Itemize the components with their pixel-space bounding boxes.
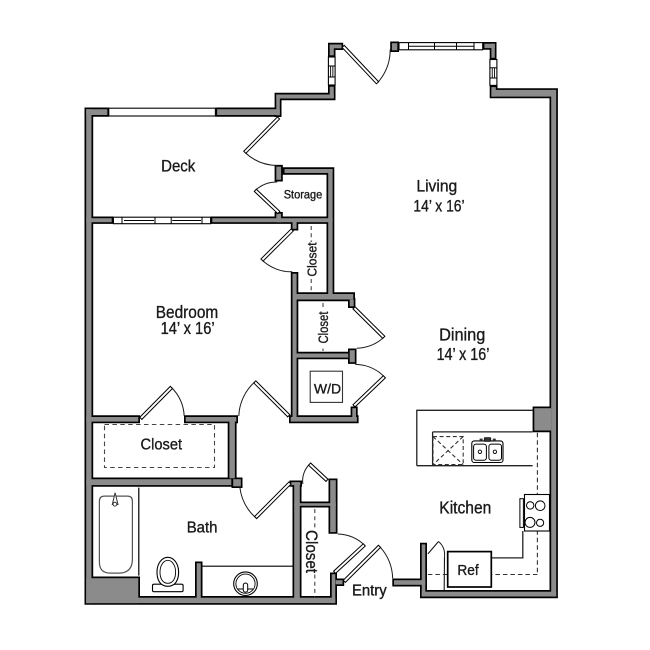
svg-text:Ref: Ref [457, 563, 479, 579]
svg-text:Closet: Closet [305, 242, 320, 277]
svg-text:Closet: Closet [302, 530, 320, 573]
svg-text:14’ x 16’: 14’ x 16’ [161, 318, 215, 338]
svg-text:14’ x 16’: 14’ x 16’ [437, 344, 490, 364]
svg-text:Closet: Closet [316, 311, 331, 343]
svg-text:Dining: Dining [439, 324, 485, 344]
svg-text:14’ x 16’: 14’ x 16’ [413, 196, 464, 215]
svg-text:Deck: Deck [161, 157, 196, 176]
svg-text:Storage: Storage [284, 188, 323, 202]
svg-text:Bath: Bath [187, 520, 218, 537]
svg-text:Closet: Closet [141, 437, 183, 454]
svg-text:Kitchen: Kitchen [439, 498, 491, 518]
svg-text:Living: Living [416, 177, 457, 196]
svg-text:Entry: Entry [352, 583, 387, 600]
svg-text:W/D: W/D [314, 381, 341, 396]
